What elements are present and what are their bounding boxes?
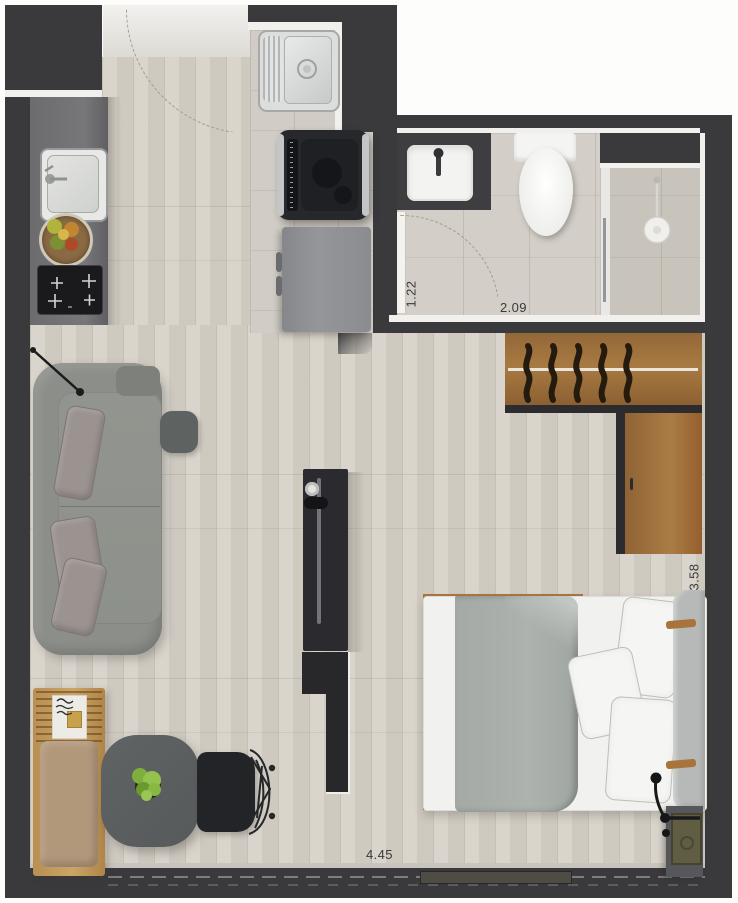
wall-under-bathroom xyxy=(383,322,705,333)
laundry-sink-basin xyxy=(284,36,332,104)
window-rail xyxy=(420,871,572,884)
dimension-label-bathroom: 2.09 xyxy=(500,300,548,315)
wall-right xyxy=(705,115,732,898)
kitchen-sink-basin xyxy=(47,155,99,213)
window-track-1 xyxy=(108,876,705,878)
wall-service-lower xyxy=(373,130,397,333)
wall-top-left-block xyxy=(5,5,102,97)
console-disc xyxy=(305,482,319,496)
refrigerator xyxy=(282,227,371,332)
tv-console-shadow xyxy=(348,472,364,652)
dimension-label-bedroom: 3.58 xyxy=(687,545,702,591)
washer-control-marks xyxy=(290,142,293,208)
fruit-5 xyxy=(58,229,69,240)
wall-bottom-window xyxy=(5,868,732,898)
entry-corridor-floor xyxy=(102,57,250,332)
wall-left xyxy=(5,5,30,868)
shower-floor-shade xyxy=(608,168,705,315)
plant-leaf-5 xyxy=(141,790,152,801)
washer-drum-circle-2 xyxy=(334,186,352,204)
bed-pillow-3 xyxy=(604,696,677,804)
dimension-label-living: 4.45 xyxy=(366,847,416,862)
divider-block-a xyxy=(302,652,350,694)
side-table xyxy=(160,411,198,453)
dimension-label-bath-entry: 1.22 xyxy=(404,264,419,308)
wardrobe-rail xyxy=(508,368,698,371)
chair-seat xyxy=(197,752,255,832)
bed-blanket-fold xyxy=(505,596,578,656)
bench-cushion xyxy=(40,741,98,867)
wall-service xyxy=(342,5,397,132)
bench-card-swatch xyxy=(67,711,82,728)
entry-threshold xyxy=(103,5,250,62)
window-track-2 xyxy=(108,884,705,886)
wardrobe-handle xyxy=(630,478,633,490)
wall-face-shower-top xyxy=(600,163,705,168)
nightstand-tray-dot xyxy=(680,836,694,850)
washer-edge-left xyxy=(277,134,284,216)
fridge-floor-shadow xyxy=(338,333,372,354)
sofa-headrest-cushion xyxy=(116,366,160,396)
vanity-basin xyxy=(407,145,473,201)
divider-block-b xyxy=(326,694,350,794)
wall-face-laundry-top xyxy=(248,22,342,30)
washer-edge-right xyxy=(362,134,369,216)
kitchen-counter-shadow xyxy=(108,97,121,325)
wall-face-entry xyxy=(5,90,102,97)
fridge-handle-2 xyxy=(276,276,282,296)
window-sill-line xyxy=(30,863,705,868)
laundry-sink-washboard xyxy=(263,36,283,102)
floor-plan: 1.22 2.09 3.58 4.45 xyxy=(0,0,738,903)
wardrobe-top-edge xyxy=(505,405,702,413)
wardrobe-side-unit xyxy=(625,413,702,554)
fridge-handle-1 xyxy=(276,252,282,272)
wall-face-bath-right xyxy=(700,133,705,315)
shower-glass-chrome-bar xyxy=(603,218,606,302)
washer-drum-circle-1 xyxy=(312,158,342,188)
sofa-seat-seam xyxy=(60,506,160,507)
fruit-4 xyxy=(65,238,78,251)
wardrobe-side-edge xyxy=(616,413,625,554)
cooktop xyxy=(38,266,102,314)
console-cylinder xyxy=(304,497,328,509)
wall-face-bath-bottom xyxy=(389,315,705,322)
